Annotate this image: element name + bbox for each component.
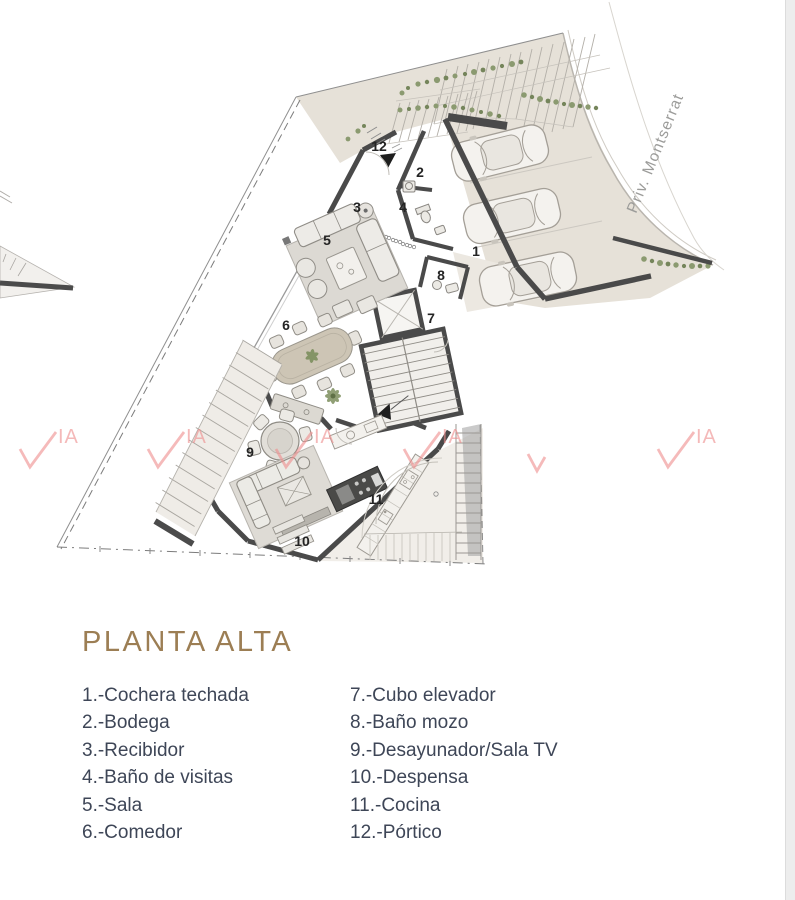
legend-item: 4.-Baño de visitas [82,764,249,791]
via-checkmark-icon [148,432,184,467]
via-watermark: IA [20,426,79,467]
via-watermark [528,454,545,471]
via-watermark-letters: IA [314,426,335,448]
via-checkmark-icon [658,432,694,467]
room-number-label: 11 [369,491,384,507]
room-number-label: 2 [416,164,424,180]
floor-plan-page: Priv. Montserrat [0,0,795,900]
via-watermark-letters: IA [442,426,463,448]
room-number-label: 3 [353,199,361,215]
legend-item: 1.-Cochera techada [82,682,249,709]
room-number-label: 12 [371,138,387,154]
room-number-label: 9 [246,444,254,460]
street-label: Priv. Montserrat [624,91,688,216]
entry-arrow-icon [380,153,396,168]
legend-item: 11.-Cocina [350,792,558,819]
room-number-label: 1 [472,243,480,259]
floor-plan: Priv. Montserrat [0,0,795,612]
room-number-label: 7 [427,310,435,326]
tv-room-furniture [229,445,342,548]
room-number-label: 8 [437,267,445,283]
via-checkmark-icon [20,432,56,467]
legend-item: 5.-Sala [82,792,249,819]
legend-item: 7.-Cubo elevador [350,682,558,709]
via-checkmark-icon [528,454,545,471]
via-watermark-letters: IA [696,426,717,448]
legend-item: 3.-Recibidor [82,737,249,764]
legend-column-1: 1.-Cochera techada2.-Bodega3.-Recibidor4… [82,682,249,846]
legend-column-2: 7.-Cubo elevador8.-Baño mozo9.-Desayunad… [350,682,558,846]
plan-title: PLANTA ALTA [82,626,293,659]
legend-item: 10.-Despensa [350,764,558,791]
neighbor-structure [0,191,74,298]
room-number-label: 6 [282,317,290,333]
legend-item: 8.-Baño mozo [350,709,558,736]
plant-icon [325,388,341,404]
legend-item: 2.-Bodega [82,709,249,736]
legend-item: 12.-Pórtico [350,819,558,846]
legend-item: 6.-Comedor [82,819,249,846]
legend-item: 9.-Desayunador/Sala TV [350,737,558,764]
via-watermark-letters: IA [186,426,207,448]
room-number-label: 5 [323,232,331,248]
via-watermark: IA [658,426,717,467]
via-watermark-letters: IA [58,426,79,448]
room-number-label: 10 [294,533,310,549]
scrollbar[interactable] [785,0,795,900]
room-number-label: 4 [399,199,407,215]
floor-plan-drawing: Priv. Montserrat [0,0,795,612]
